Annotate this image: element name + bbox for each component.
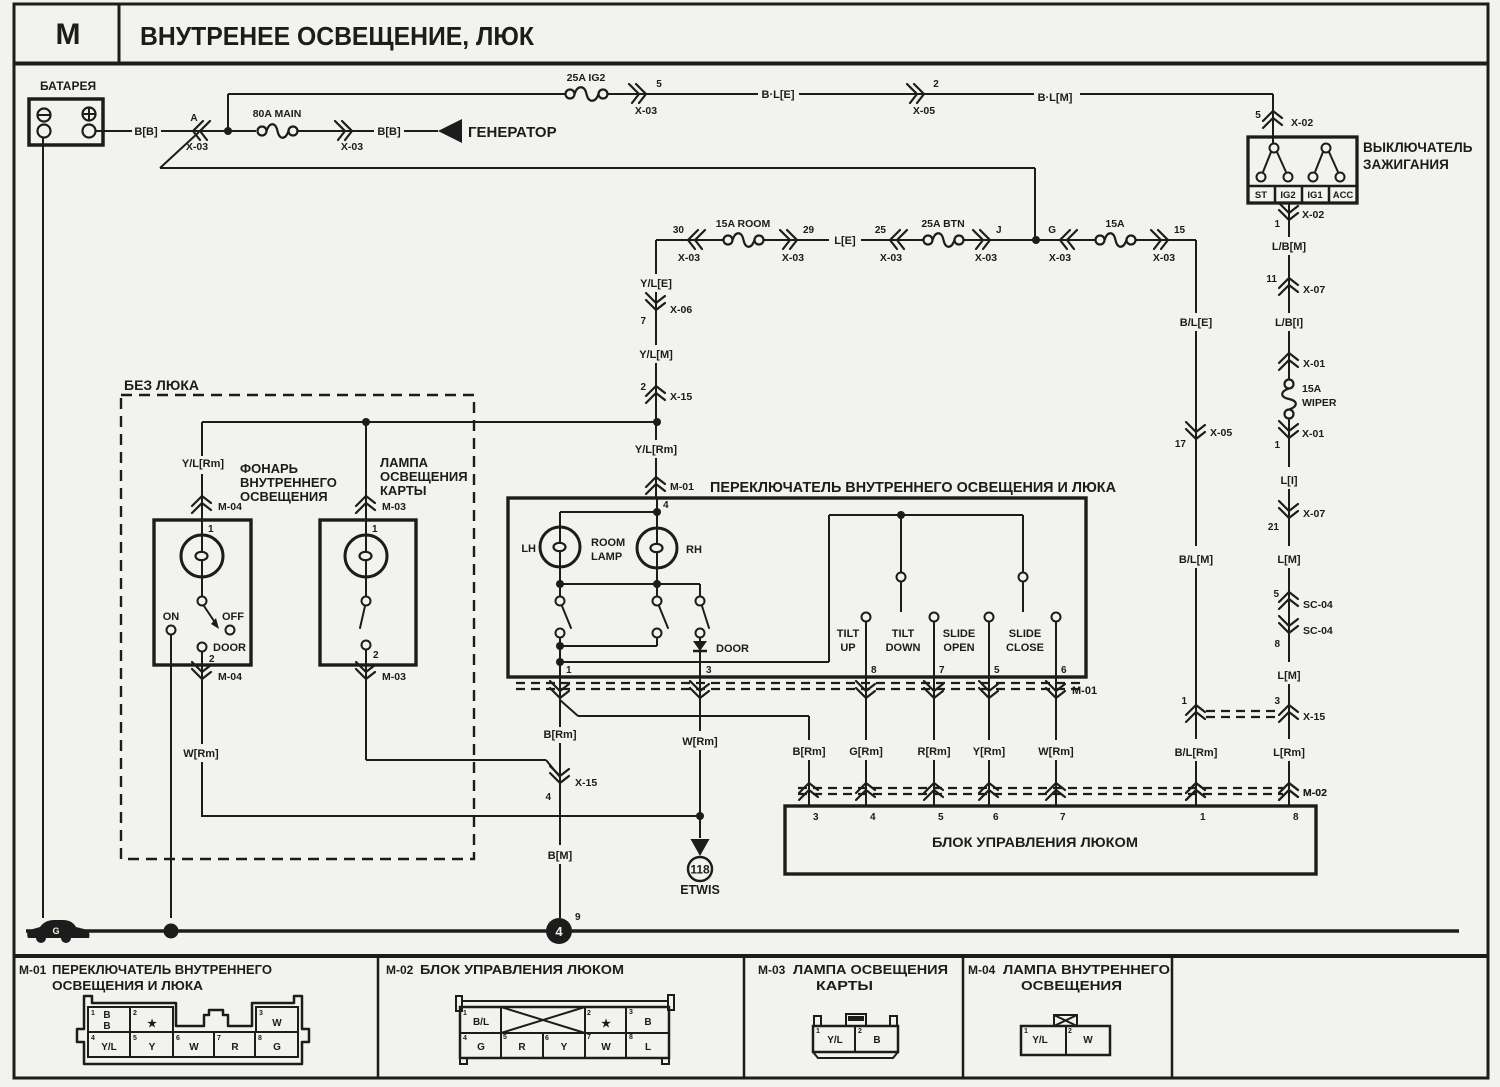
svg-text:SC-04: SC-04 xyxy=(1303,625,1333,637)
svg-text:X-01: X-01 xyxy=(1302,428,1324,440)
svg-text:M-01: M-01 xyxy=(1072,685,1097,697)
svg-text:7: 7 xyxy=(640,316,646,327)
svg-text:W[Rm]: W[Rm] xyxy=(1038,746,1074,758)
svg-text:B[Rm]: B[Rm] xyxy=(544,729,577,741)
svg-text:DOOR: DOOR xyxy=(213,642,246,654)
svg-text:B[B]: B[B] xyxy=(377,126,401,138)
svg-text:М: М xyxy=(56,18,81,51)
svg-text:1: 1 xyxy=(1274,219,1280,230)
svg-text:ОСВЕЩЕНИЯ: ОСВЕЩЕНИЯ xyxy=(380,469,468,484)
svg-text:ACC: ACC xyxy=(1333,190,1354,201)
svg-text:A: A xyxy=(190,113,197,124)
svg-text:M-04: M-04 xyxy=(968,963,996,977)
svg-text:L/B[M]: L/B[M] xyxy=(1272,241,1307,253)
svg-text:Y/L[M]: Y/L[M] xyxy=(639,349,673,361)
svg-text:БАТАРЕЯ: БАТАРЕЯ xyxy=(40,79,96,93)
svg-text:5: 5 xyxy=(656,79,662,90)
svg-text:КАРТЫ: КАРТЫ xyxy=(816,978,873,993)
svg-text:B·L[E]: B·L[E] xyxy=(762,89,795,101)
svg-text:6: 6 xyxy=(993,812,999,823)
svg-text:Y/L[Rm]: Y/L[Rm] xyxy=(635,444,678,456)
svg-text:5: 5 xyxy=(503,1034,507,1041)
svg-text:B/L[M]: B/L[M] xyxy=(1179,554,1214,566)
svg-text:LAMP: LAMP xyxy=(591,551,622,563)
svg-text:Y/L[E]: Y/L[E] xyxy=(640,278,672,290)
svg-text:G: G xyxy=(52,926,59,936)
svg-text:X-03: X-03 xyxy=(975,252,997,264)
svg-text:ГЕНЕРАТОР: ГЕНЕРАТОР xyxy=(468,124,557,141)
svg-text:B/L[E]: B/L[E] xyxy=(1180,317,1213,329)
svg-text:8: 8 xyxy=(871,665,877,676)
svg-text:G: G xyxy=(1048,225,1056,236)
svg-text:1: 1 xyxy=(816,1028,820,1035)
svg-text:DOWN: DOWN xyxy=(886,642,921,654)
svg-text:15A: 15A xyxy=(1105,218,1125,230)
svg-text:OFF: OFF xyxy=(222,611,244,623)
svg-text:2: 2 xyxy=(587,1010,591,1017)
svg-text:M-03: M-03 xyxy=(758,963,786,977)
svg-text:ВНУТРЕНЕЕ ОСВЕЩЕНИЕ, ЛЮК: ВНУТРЕНЕЕ ОСВЕЩЕНИЕ, ЛЮК xyxy=(140,21,534,51)
svg-text:3: 3 xyxy=(813,812,819,823)
svg-text:ОСВЕЩЕНИЯ: ОСВЕЩЕНИЯ xyxy=(240,489,328,504)
svg-text:Y/L[Rm]: Y/L[Rm] xyxy=(182,458,225,470)
svg-text:M-02: M-02 xyxy=(386,963,414,977)
svg-text:ОСВЕЩЕНИЯ: ОСВЕЩЕНИЯ xyxy=(1021,978,1122,993)
svg-text:X-03: X-03 xyxy=(341,141,363,153)
svg-text:DOOR: DOOR xyxy=(716,643,749,655)
svg-text:X-05: X-05 xyxy=(1210,427,1232,439)
svg-text:8: 8 xyxy=(258,1035,262,1042)
svg-text:WIPER: WIPER xyxy=(1302,397,1337,409)
svg-text:X-15: X-15 xyxy=(670,391,692,403)
svg-text:ВЫКЛЮЧАТЕЛЬ: ВЫКЛЮЧАТЕЛЬ xyxy=(1363,140,1473,155)
svg-text:4: 4 xyxy=(463,1035,467,1042)
svg-text:L[M]: L[M] xyxy=(1277,554,1301,566)
svg-text:1: 1 xyxy=(1200,812,1206,823)
svg-text:OPEN: OPEN xyxy=(943,642,974,654)
svg-text:B: B xyxy=(103,1021,110,1032)
svg-text:SC-04: SC-04 xyxy=(1303,599,1333,611)
svg-text:X-07: X-07 xyxy=(1303,508,1325,520)
svg-text:X-07: X-07 xyxy=(1303,284,1325,296)
svg-text:RH: RH xyxy=(686,544,702,556)
svg-text:B: B xyxy=(873,1035,880,1046)
svg-text:4: 4 xyxy=(870,812,876,823)
svg-text:3: 3 xyxy=(259,1010,263,1017)
svg-text:6: 6 xyxy=(545,1035,549,1042)
svg-text:3: 3 xyxy=(706,665,712,676)
svg-text:1: 1 xyxy=(372,524,378,535)
svg-text:IG1: IG1 xyxy=(1307,190,1323,201)
svg-text:SLIDE: SLIDE xyxy=(943,628,975,640)
svg-text:1: 1 xyxy=(208,524,214,535)
svg-text:X-15: X-15 xyxy=(1303,711,1325,723)
svg-text:ОСВЕЩЕНИЯ И ЛЮКА: ОСВЕЩЕНИЯ И ЛЮКА xyxy=(52,978,204,993)
svg-text:ON: ON xyxy=(163,611,180,623)
svg-text:B[M]: B[M] xyxy=(548,850,573,862)
svg-text:X-03: X-03 xyxy=(635,105,657,117)
svg-text:R[Rm]: R[Rm] xyxy=(918,746,951,758)
svg-text:5: 5 xyxy=(938,812,944,823)
svg-text:M-03: M-03 xyxy=(382,671,406,683)
svg-text:TILT: TILT xyxy=(892,628,915,640)
svg-text:W: W xyxy=(189,1042,199,1053)
svg-text:25A BTN: 25A BTN xyxy=(921,218,964,230)
svg-text:L[M]: L[M] xyxy=(1277,670,1301,682)
svg-text:L: L xyxy=(645,1042,651,1053)
svg-text:4: 4 xyxy=(663,500,669,511)
svg-text:ВНУТРЕННЕГО: ВНУТРЕННЕГО xyxy=(240,475,337,490)
svg-text:29: 29 xyxy=(803,225,815,236)
svg-text:X-02: X-02 xyxy=(1291,117,1313,129)
svg-text:X-01: X-01 xyxy=(1303,358,1325,370)
svg-text:80A MAIN: 80A MAIN xyxy=(253,108,302,120)
svg-text:2: 2 xyxy=(933,79,939,90)
svg-text:6: 6 xyxy=(1061,665,1067,676)
svg-text:1: 1 xyxy=(1274,440,1280,451)
svg-text:7: 7 xyxy=(217,1035,221,1042)
svg-text:LH: LH xyxy=(521,543,536,555)
svg-text:1: 1 xyxy=(1024,1028,1028,1035)
svg-text:Y[Rm]: Y[Rm] xyxy=(973,746,1006,758)
svg-text:R: R xyxy=(518,1042,526,1053)
svg-text:БЛОК УПРАВЛЕНИЯ ЛЮКОМ: БЛОК УПРАВЛЕНИЯ ЛЮКОМ xyxy=(932,834,1138,850)
svg-text:Y: Y xyxy=(561,1042,568,1053)
svg-text:B[Rm]: B[Rm] xyxy=(793,746,826,758)
svg-text:1: 1 xyxy=(463,1010,467,1017)
svg-text:15A: 15A xyxy=(1302,383,1322,395)
svg-text:W: W xyxy=(1083,1035,1093,1046)
svg-text:2: 2 xyxy=(209,654,215,665)
svg-text:L[E]: L[E] xyxy=(834,235,856,247)
svg-text:M-02: M-02 xyxy=(1303,787,1327,799)
svg-text:G: G xyxy=(477,1042,485,1053)
svg-text:ПЕРЕКЛЮЧАТЕЛЬ ВНУТРЕННЕГО: ПЕРЕКЛЮЧАТЕЛЬ ВНУТРЕННЕГО xyxy=(52,962,272,977)
svg-text:2: 2 xyxy=(133,1010,137,1017)
svg-text:118: 118 xyxy=(690,863,710,877)
svg-text:7: 7 xyxy=(939,665,945,676)
svg-text:ПЕРЕКЛЮЧАТЕЛЬ ВНУТРЕННЕГО ОСВЕ: ПЕРЕКЛЮЧАТЕЛЬ ВНУТРЕННЕГО ОСВЕЩЕНИЯ И ЛЮ… xyxy=(710,479,1116,496)
svg-text:X-06: X-06 xyxy=(670,304,692,316)
svg-text:Y: Y xyxy=(149,1042,156,1053)
svg-text:5: 5 xyxy=(1273,589,1279,600)
svg-text:17: 17 xyxy=(1175,439,1187,450)
svg-text:TILT: TILT xyxy=(837,628,860,640)
svg-text:2: 2 xyxy=(858,1028,862,1035)
svg-text:M-03: M-03 xyxy=(382,501,406,513)
svg-text:8: 8 xyxy=(1293,812,1299,823)
svg-text:★: ★ xyxy=(601,1018,611,1030)
svg-text:4: 4 xyxy=(91,1035,95,1042)
svg-text:W[Rm]: W[Rm] xyxy=(682,736,718,748)
svg-text:R: R xyxy=(231,1042,239,1053)
svg-text:CLOSE: CLOSE xyxy=(1006,642,1044,654)
svg-text:G: G xyxy=(273,1042,281,1053)
svg-text:6: 6 xyxy=(176,1035,180,1042)
svg-text:2: 2 xyxy=(640,382,646,393)
svg-text:M-01: M-01 xyxy=(19,963,47,977)
svg-text:X-03: X-03 xyxy=(880,252,902,264)
svg-text:ROOM: ROOM xyxy=(591,537,625,549)
svg-text:B·L[M]: B·L[M] xyxy=(1038,92,1073,104)
svg-text:30: 30 xyxy=(673,225,685,236)
svg-text:B/L: B/L xyxy=(473,1017,489,1028)
svg-text:1: 1 xyxy=(1181,696,1187,707)
svg-text:КАРТЫ: КАРТЫ xyxy=(380,483,427,498)
svg-text:БЕЗ ЛЮКА: БЕЗ ЛЮКА xyxy=(124,377,199,393)
svg-text:W[Rm]: W[Rm] xyxy=(183,748,219,760)
svg-text:21: 21 xyxy=(1268,522,1280,533)
svg-text:25A IG2: 25A IG2 xyxy=(567,72,606,84)
svg-text:X-03: X-03 xyxy=(1153,252,1175,264)
svg-text:2: 2 xyxy=(373,650,379,661)
svg-text:ETWIS: ETWIS xyxy=(680,883,720,897)
svg-text:1: 1 xyxy=(566,665,572,676)
svg-text:ST: ST xyxy=(1255,190,1267,201)
svg-text:ЛАМПА ОСВЕЩЕНИЯ: ЛАМПА ОСВЕЩЕНИЯ xyxy=(793,962,948,977)
svg-text:7: 7 xyxy=(587,1034,591,1041)
svg-text:5: 5 xyxy=(133,1035,137,1042)
svg-text:SLIDE: SLIDE xyxy=(1009,628,1041,640)
svg-text:★: ★ xyxy=(147,1018,157,1030)
svg-text:4: 4 xyxy=(545,792,551,803)
svg-text:Y/L: Y/L xyxy=(827,1035,843,1046)
svg-text:B/L[Rm]: B/L[Rm] xyxy=(1175,747,1218,759)
svg-text:4: 4 xyxy=(555,924,563,939)
svg-text:Y/L: Y/L xyxy=(101,1042,117,1053)
svg-text:3: 3 xyxy=(1274,696,1280,707)
svg-text:8: 8 xyxy=(629,1034,633,1041)
svg-text:5: 5 xyxy=(994,665,1000,676)
svg-text:B: B xyxy=(644,1017,651,1028)
svg-text:M-04: M-04 xyxy=(218,671,242,683)
svg-text:B[B]: B[B] xyxy=(134,126,158,138)
svg-text:L[I]: L[I] xyxy=(1280,475,1297,487)
svg-text:ЛАМПА: ЛАМПА xyxy=(380,455,429,470)
svg-text:15: 15 xyxy=(1174,225,1186,236)
svg-text:UP: UP xyxy=(840,642,855,654)
svg-text:M-01: M-01 xyxy=(670,481,694,493)
svg-text:25: 25 xyxy=(875,225,887,236)
svg-text:БЛОК УПРАВЛЕНИЯ ЛЮКОМ: БЛОК УПРАВЛЕНИЯ ЛЮКОМ xyxy=(420,962,624,977)
svg-text:ЗАЖИГАНИЯ: ЗАЖИГАНИЯ xyxy=(1363,157,1449,172)
svg-text:X-03: X-03 xyxy=(782,252,804,264)
svg-text:X-03: X-03 xyxy=(186,141,208,153)
svg-text:X-02: X-02 xyxy=(1302,209,1324,221)
svg-text:J: J xyxy=(996,225,1002,236)
svg-text:B: B xyxy=(103,1010,110,1021)
svg-text:2: 2 xyxy=(1068,1028,1072,1035)
svg-text:X-03: X-03 xyxy=(678,252,700,264)
svg-text:9: 9 xyxy=(575,912,581,923)
svg-text:X-15: X-15 xyxy=(575,777,597,789)
svg-text:5: 5 xyxy=(1255,110,1261,121)
svg-text:X-05: X-05 xyxy=(913,105,935,117)
svg-text:X-03: X-03 xyxy=(1049,252,1071,264)
svg-text:M-04: M-04 xyxy=(218,501,242,513)
svg-text:8: 8 xyxy=(1274,639,1280,650)
svg-text:G[Rm]: G[Rm] xyxy=(849,746,883,758)
svg-text:W: W xyxy=(272,1018,282,1029)
svg-text:IG2: IG2 xyxy=(1280,190,1295,201)
svg-text:Y/L: Y/L xyxy=(1032,1035,1048,1046)
svg-text:W: W xyxy=(601,1042,611,1053)
svg-text:L/B[I]: L/B[I] xyxy=(1275,317,1303,329)
svg-text:ЛАМПА ВНУТРЕННЕГО: ЛАМПА ВНУТРЕННЕГО xyxy=(1003,962,1170,977)
svg-text:1: 1 xyxy=(91,1010,95,1017)
svg-text:L[Rm]: L[Rm] xyxy=(1273,747,1305,759)
svg-text:ФОНАРЬ: ФОНАРЬ xyxy=(240,461,298,476)
svg-text:7: 7 xyxy=(1060,812,1066,823)
svg-text:3: 3 xyxy=(629,1009,633,1016)
svg-text:11: 11 xyxy=(1266,274,1277,285)
svg-text:15A ROOM: 15A ROOM xyxy=(716,218,771,230)
